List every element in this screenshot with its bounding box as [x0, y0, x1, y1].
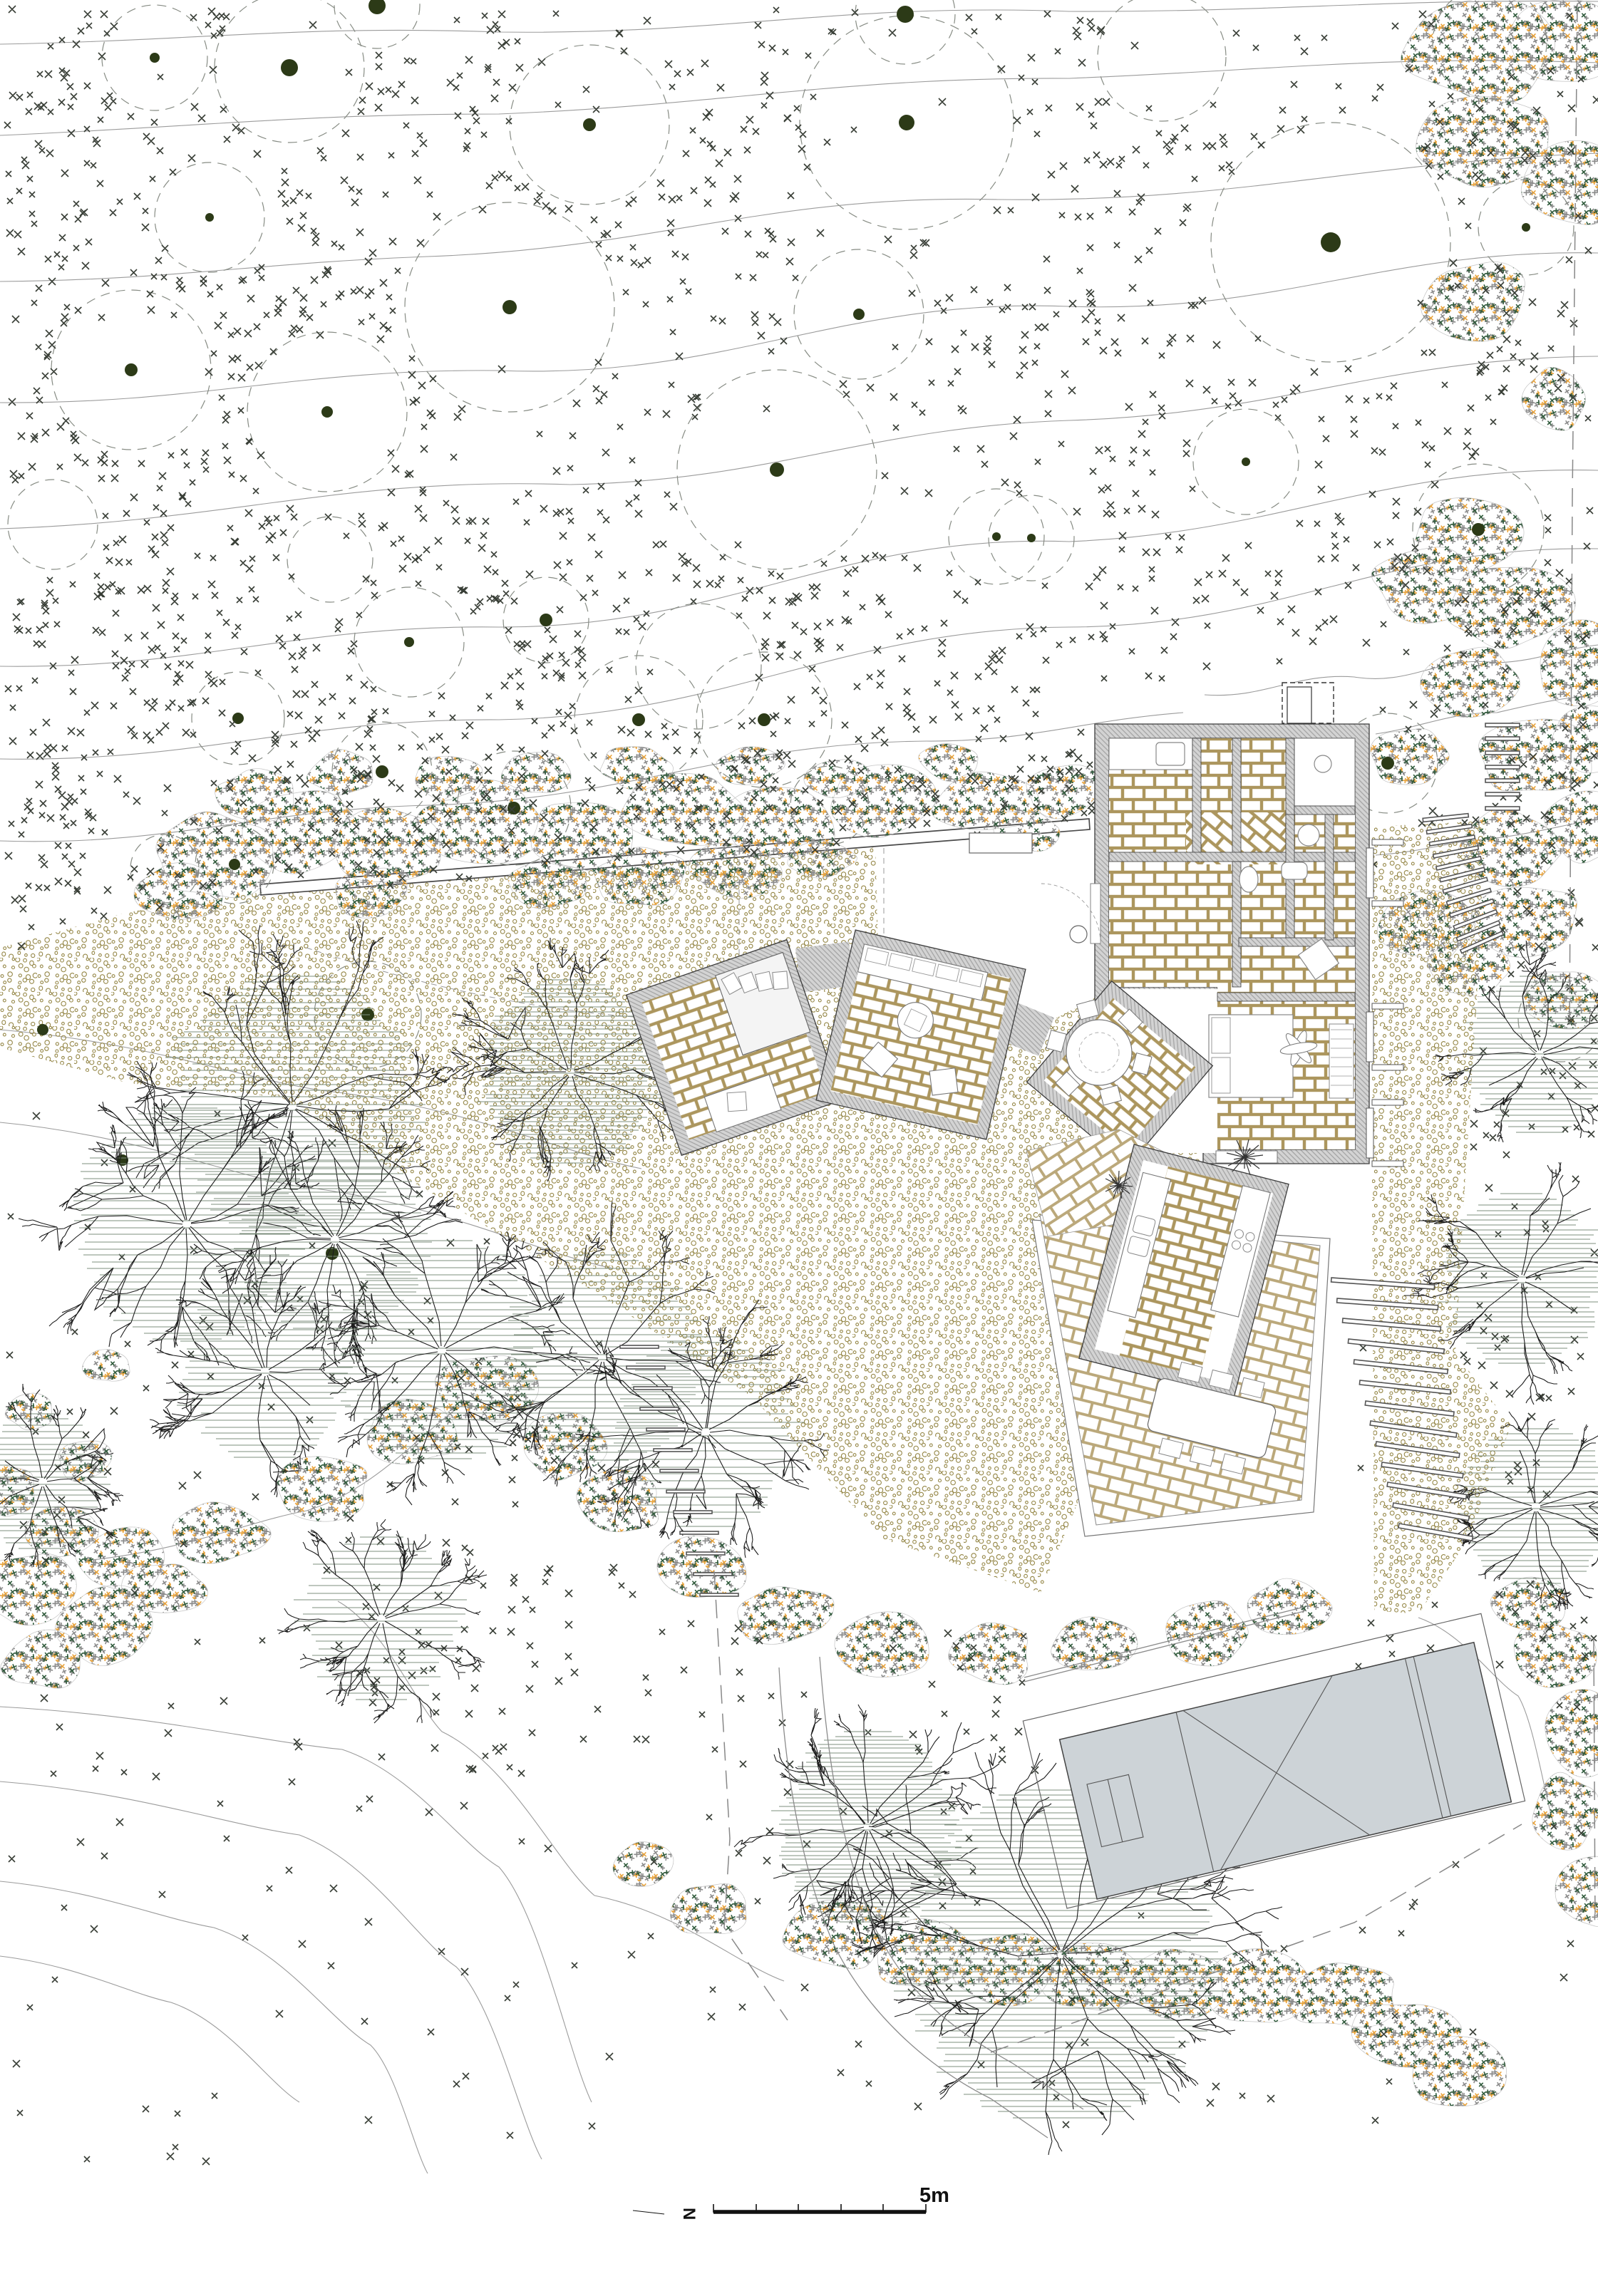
- svg-text:5m: 5m: [919, 2184, 949, 2207]
- svg-text:N: N: [679, 2208, 699, 2220]
